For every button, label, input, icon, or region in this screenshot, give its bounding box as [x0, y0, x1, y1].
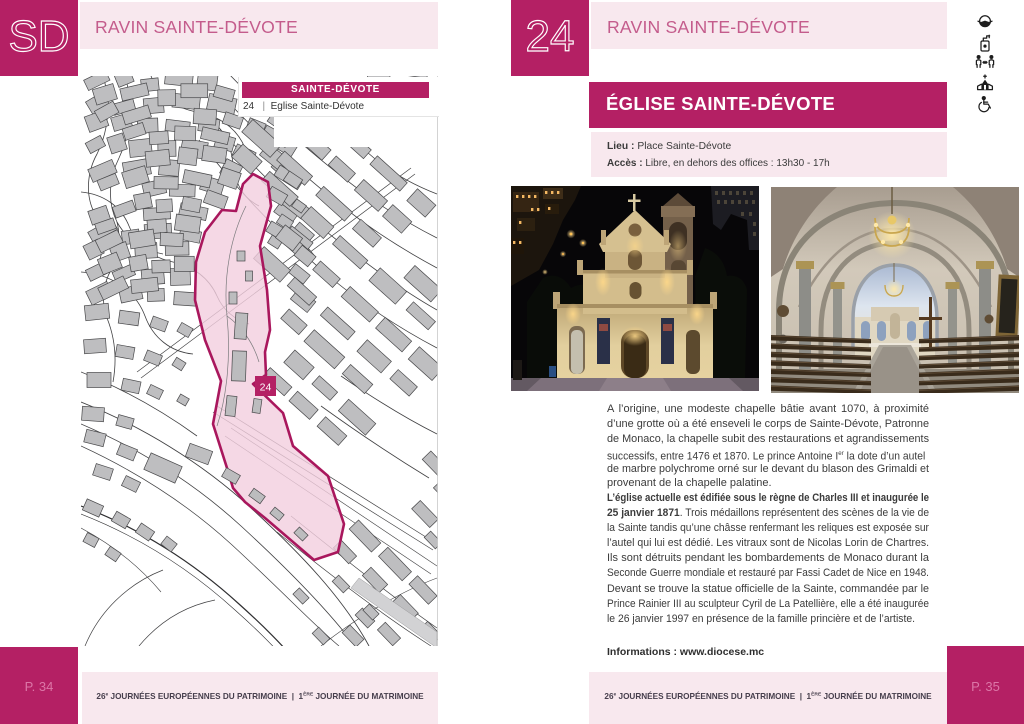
svg-text:24: 24 [260, 382, 272, 394]
